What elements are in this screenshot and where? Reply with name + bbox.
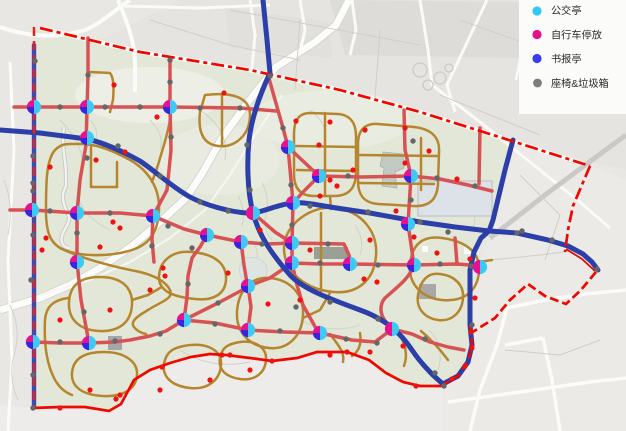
svg-text:书报亭: 书报亭 xyxy=(551,53,582,66)
svg-text:公交亭: 公交亭 xyxy=(551,4,582,17)
svg-text:座椅&垃圾箱: 座椅&垃圾箱 xyxy=(551,77,609,90)
svg-text:自行车停放: 自行车停放 xyxy=(551,29,602,42)
